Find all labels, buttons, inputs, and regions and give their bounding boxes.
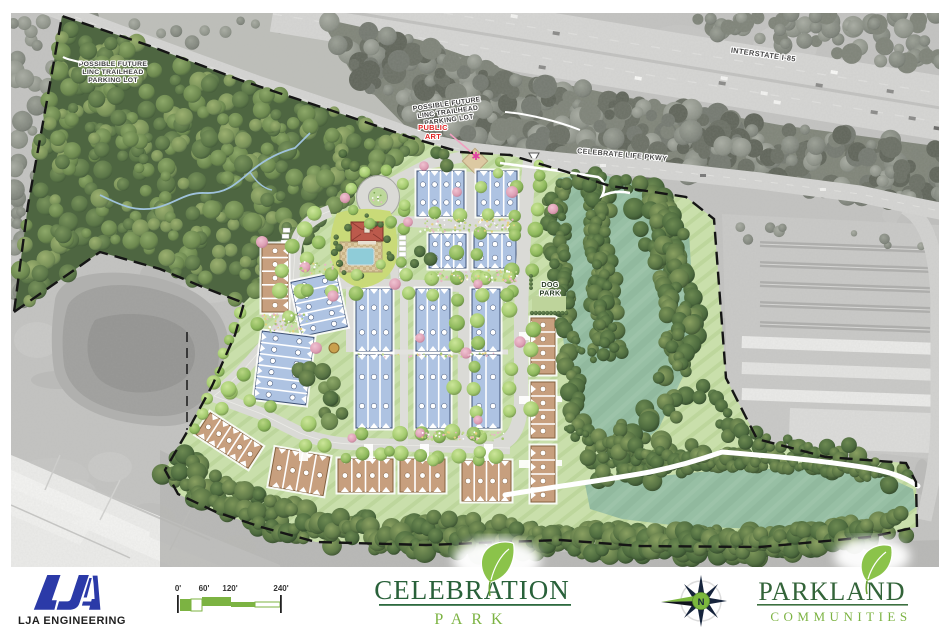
svg-text:POSSIBLE FUTURE: POSSIBLE FUTURE — [79, 61, 147, 68]
svg-text:LJA ENGINEERING: LJA ENGINEERING — [18, 615, 126, 627]
svg-text:CELEBRATION: CELEBRATION — [374, 575, 570, 605]
svg-text:COMMUNITIES: COMMUNITIES — [770, 609, 911, 624]
svg-text:PARKLAND: PARKLAND — [758, 577, 905, 606]
svg-text:60': 60' — [199, 584, 210, 593]
svg-text:PARKING LOT: PARKING LOT — [88, 77, 138, 84]
svg-text:N: N — [698, 597, 705, 608]
svg-text:PARK: PARK — [539, 288, 561, 297]
svg-text:PUBLIC: PUBLIC — [418, 123, 448, 132]
svg-text:ART: ART — [425, 132, 441, 141]
svg-text:0': 0' — [175, 584, 181, 593]
svg-text:LINC TRAILHEAD: LINC TRAILHEAD — [82, 69, 143, 76]
svg-text:120': 120' — [222, 584, 237, 593]
svg-text:PARK: PARK — [434, 611, 511, 628]
svg-text:240': 240' — [273, 584, 288, 593]
